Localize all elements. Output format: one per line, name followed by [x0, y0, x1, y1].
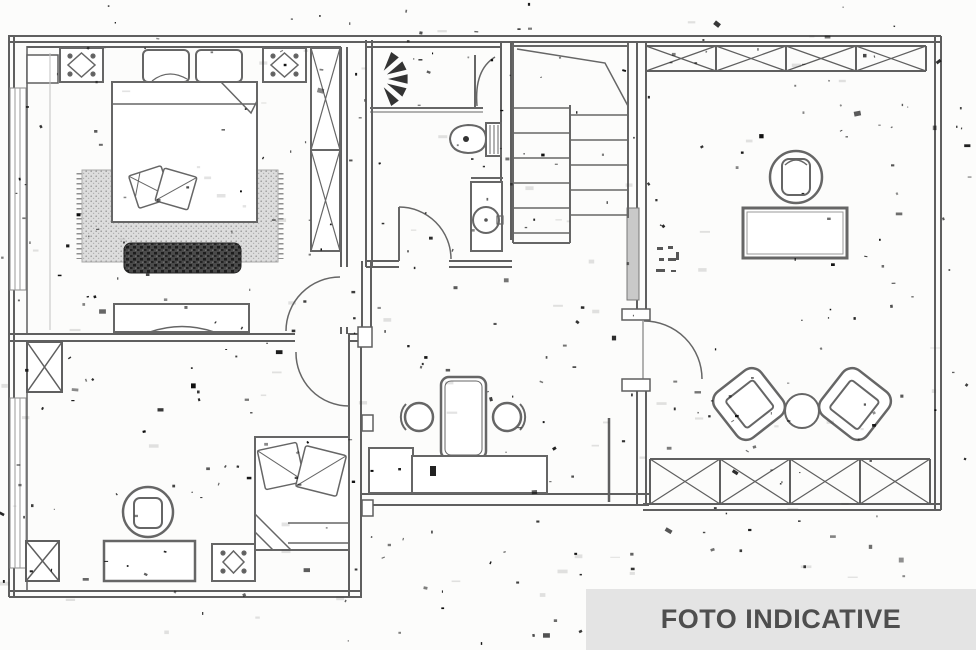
bathroom — [370, 52, 503, 261]
double-bed — [112, 82, 257, 222]
door-swing — [296, 352, 349, 406]
dresser — [114, 304, 249, 332]
desk-chair — [123, 487, 173, 537]
toilet — [450, 123, 501, 156]
door-swing — [399, 207, 451, 259]
wall-column — [27, 342, 62, 392]
chair — [401, 403, 433, 431]
bedroom1 — [50, 48, 340, 332]
chair — [493, 403, 525, 431]
living-room — [646, 46, 930, 504]
desk-chair — [770, 151, 822, 203]
watermark-badge: FOTO INDICATIVE — [586, 589, 976, 650]
lounge-chair — [708, 363, 789, 444]
window-band-bottom — [650, 459, 930, 504]
washbasin — [471, 182, 503, 251]
side-table — [785, 394, 819, 428]
illegible-label-smudge — [656, 246, 679, 272]
single-bed — [255, 437, 349, 550]
wall-column — [26, 541, 59, 581]
floor-plan-page: FOTO INDICATIVE — [0, 0, 976, 650]
shower-spray-icon — [384, 52, 408, 106]
bedroom2 — [26, 342, 349, 581]
floor-plan-drawing — [0, 0, 976, 650]
desk — [104, 541, 195, 581]
window-left-lower — [10, 398, 26, 568]
window-left-upper — [10, 88, 26, 290]
window-band-top — [646, 46, 926, 71]
ceiling-light-icon — [60, 48, 103, 82]
door-swing — [644, 321, 702, 379]
dining-table — [441, 377, 486, 459]
wardrobe — [311, 48, 340, 251]
hall — [369, 321, 702, 493]
lounge-chair — [814, 363, 895, 444]
bench — [124, 243, 241, 273]
hatched-wall-strip — [627, 208, 639, 300]
watermark-label: FOTO INDICATIVE — [661, 604, 902, 635]
staircase — [513, 43, 628, 243]
ceiling-light-icon — [212, 544, 255, 581]
headboard-pillows — [143, 50, 242, 82]
desk — [743, 208, 847, 258]
